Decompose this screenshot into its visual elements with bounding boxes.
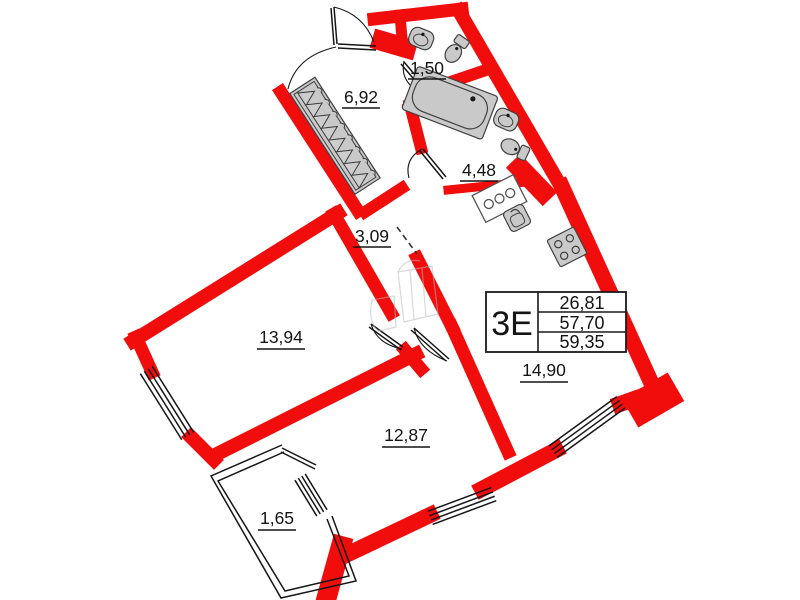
svg-text:6,92: 6,92	[344, 87, 378, 107]
svg-text:4,48: 4,48	[462, 160, 496, 180]
svg-text:1,65: 1,65	[260, 508, 294, 528]
room-label-bathroom: 4,48	[460, 160, 498, 181]
open-passage-dashed	[397, 227, 417, 254]
svg-text:3,09: 3,09	[355, 226, 389, 246]
unit-area-1: 26,81	[559, 293, 604, 313]
room-label-kitchen-living: 14,90	[520, 360, 568, 382]
svg-text:12,87: 12,87	[384, 425, 428, 445]
toilet-icon	[442, 34, 471, 66]
unit-area-2: 57,70	[559, 313, 604, 333]
svg-text:13,94: 13,94	[259, 327, 303, 347]
room-label-wardrobe: 6,92	[342, 87, 380, 108]
unit-type-label: 3Е	[491, 305, 533, 343]
unit-info-table: 3Е 26,81 57,70 59,35	[486, 292, 626, 352]
room-label-balcony: 1,65	[258, 508, 296, 530]
room-label-living: 12,87	[382, 425, 430, 447]
room-label-hall: 3,09	[353, 226, 391, 247]
window-balcony	[295, 474, 327, 516]
floor-plan: 1,50 6,92 4,48 3,09 13,94 12,87 14,90 1	[0, 0, 800, 600]
room-label-wc: 1,50	[408, 58, 446, 79]
window-bedroom	[140, 366, 193, 440]
entry-door-arc	[334, 7, 374, 42]
room-label-bedroom: 13,94	[257, 327, 305, 349]
floor-plan-canvas: 1,50 6,92 4,48 3,09 13,94 12,87 14,90 1	[0, 0, 800, 600]
svg-text:14,90: 14,90	[522, 360, 566, 380]
unit-area-3: 59,35	[559, 332, 604, 352]
svg-text:1,50: 1,50	[410, 58, 444, 78]
